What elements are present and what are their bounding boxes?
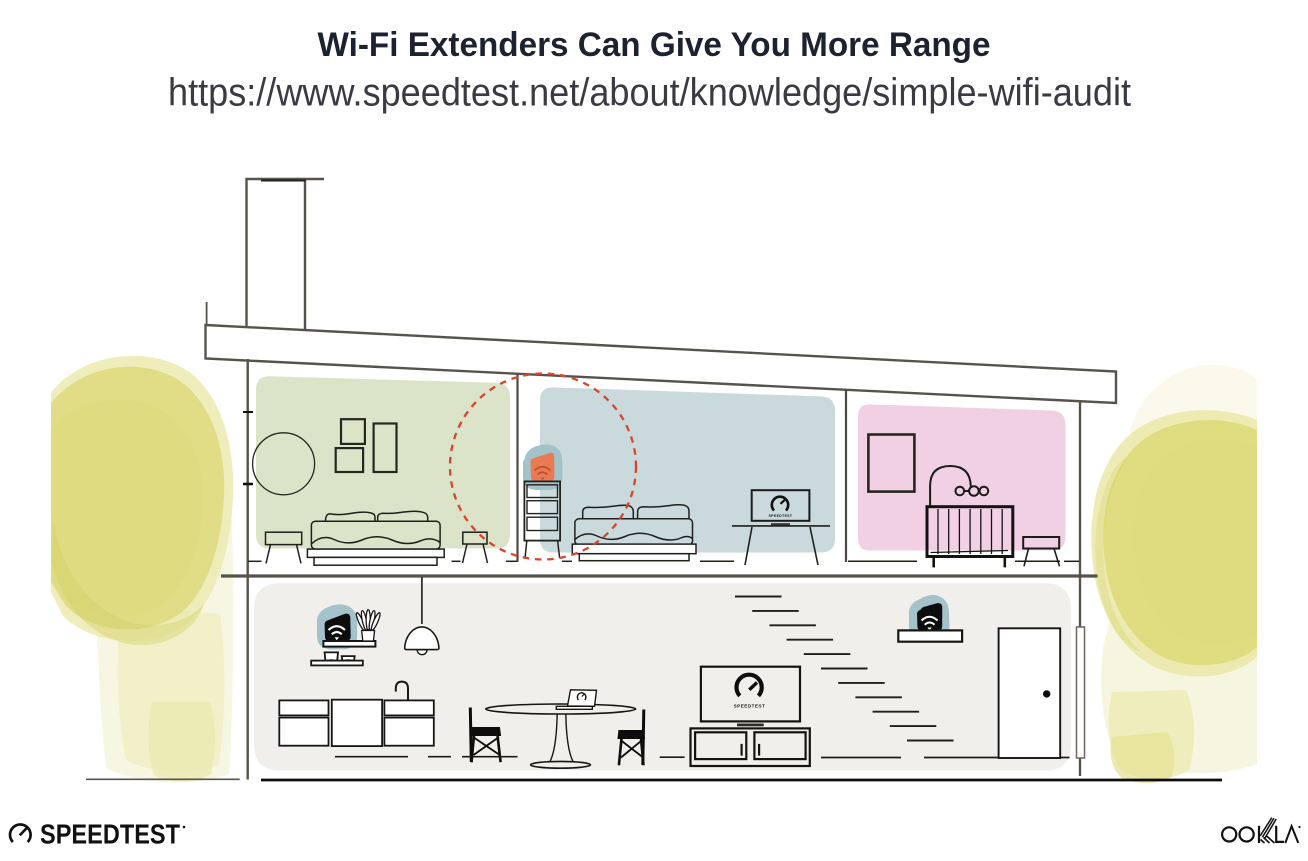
svg-text:https://www.speedtest.net/abou: https://www.speedtest.net/about/knowledg… bbox=[168, 72, 1131, 115]
svg-text:Wi-Fi Extenders Can Give You M: Wi-Fi Extenders Can Give You More Range bbox=[318, 26, 991, 64]
svg-text:SPEEDTEST: SPEEDTEST bbox=[40, 818, 180, 849]
svg-text:SPEEDTEST: SPEEDTEST bbox=[769, 514, 793, 518]
svg-text:SPEEDTEST: SPEEDTEST bbox=[734, 704, 766, 709]
